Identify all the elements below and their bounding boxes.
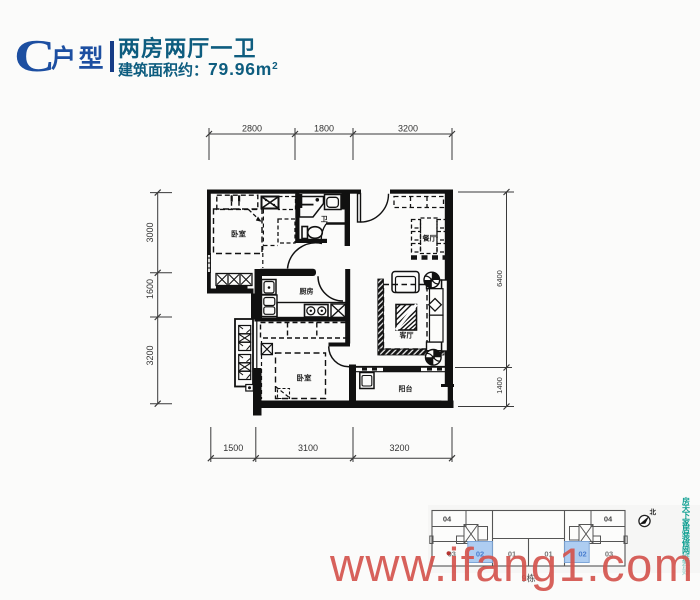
svg-text:阳台: 阳台	[399, 384, 413, 393]
svg-text:3200: 3200	[398, 124, 418, 134]
svg-text:北: 北	[650, 507, 657, 516]
svg-text:3200: 3200	[389, 443, 409, 453]
svg-text:卧室: 卧室	[231, 229, 246, 239]
svg-text:3200: 3200	[145, 345, 155, 365]
svg-text:6400: 6400	[495, 270, 504, 287]
svg-text:客厅: 客厅	[399, 330, 414, 339]
svg-text:1500: 1500	[223, 443, 243, 453]
svg-text:2800: 2800	[242, 124, 262, 134]
svg-text:卫: 卫	[321, 216, 328, 224]
svg-text:卧室: 卧室	[297, 373, 312, 383]
svg-text:厨房: 厨房	[300, 287, 314, 296]
svg-text:1800: 1800	[314, 124, 334, 134]
svg-text:餐厅: 餐厅	[422, 233, 437, 242]
svg-text:3000: 3000	[145, 222, 155, 242]
svg-text:04: 04	[604, 515, 613, 524]
svg-text:04: 04	[443, 515, 452, 524]
svg-text:3100: 3100	[298, 443, 318, 453]
svg-text:1400: 1400	[495, 377, 504, 394]
svg-text:1600: 1600	[145, 279, 155, 299]
